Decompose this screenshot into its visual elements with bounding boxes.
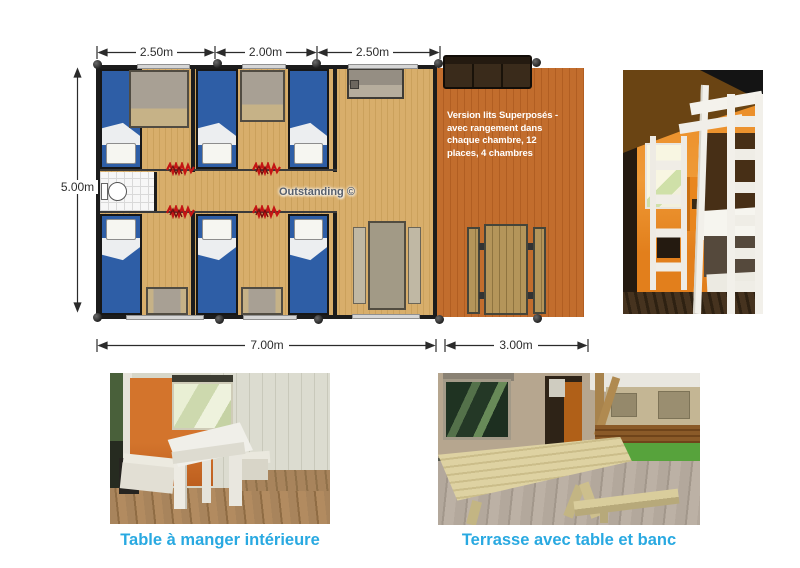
dimension-label: 5.00m <box>57 180 98 194</box>
photo-caption: Terrasse avec table et banc <box>438 531 700 550</box>
brochure-page: 2.50m 2.00m 2.50m 5.00m 7.00m 3.00m Vers… <box>0 0 800 568</box>
photo-terrace <box>438 373 700 525</box>
window-bar <box>172 375 234 383</box>
shelf-unit <box>650 136 688 290</box>
photo-dining-table <box>110 373 330 524</box>
photo-bunk-room <box>623 70 763 314</box>
dimension-label: 3.00m <box>494 338 538 352</box>
dimension-label: 2.00m <box>245 45 286 59</box>
window <box>443 379 511 440</box>
terrace-note: Version lits Superposés - avec rangement… <box>447 110 579 160</box>
window <box>172 382 234 430</box>
bunk-ladder <box>727 94 763 314</box>
dimension-label: 2.50m <box>352 45 393 59</box>
wood-floor <box>110 488 330 524</box>
neighbor-window <box>658 391 689 418</box>
terrace-note-line: Version lits Superposés - <box>447 110 579 123</box>
photo-caption: Table à manger intérieure <box>110 531 330 550</box>
terrace-note-line: places, 4 chambres <box>447 148 579 161</box>
dimension-label: 7.00m <box>245 338 289 352</box>
terrace-note-line: chaque chambre, 12 <box>447 135 579 148</box>
table-leg <box>229 449 242 506</box>
neighbor-window <box>611 393 637 417</box>
door-window <box>549 379 565 397</box>
table-leg <box>202 458 211 503</box>
watermark: Outstanding © <box>279 186 355 198</box>
bench-front <box>120 462 175 493</box>
dimension-label: 2.50m <box>136 45 177 59</box>
terrace-note-line: avec rangement dans <box>447 123 579 136</box>
picnic-bench-leg <box>600 508 608 523</box>
